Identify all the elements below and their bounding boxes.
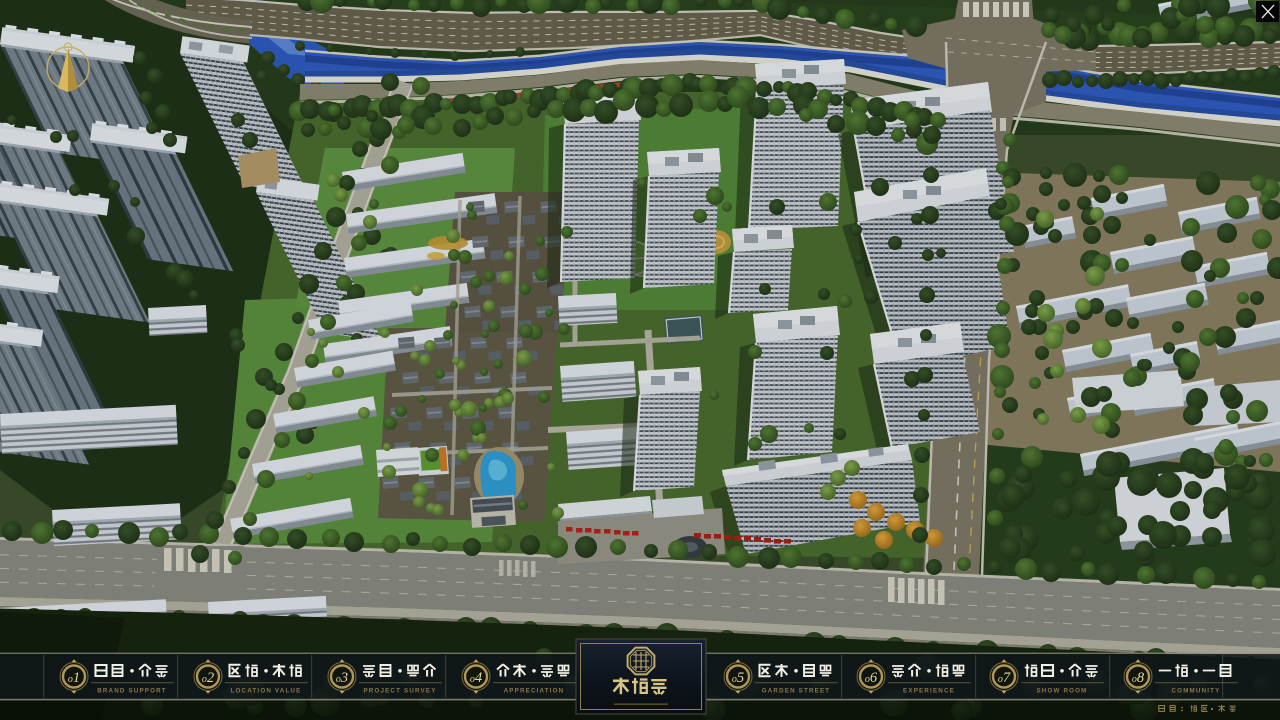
svg-text:GARDEN STREET: GARDEN STREET xyxy=(762,688,831,695)
svg-text:EXPERIENCE: EXPERIENCE xyxy=(903,688,955,695)
svg-text:BRAND SUPPORT: BRAND SUPPORT xyxy=(97,688,167,695)
svg-text:SHOW ROOM: SHOW ROOM xyxy=(1036,688,1087,695)
svg-text:PROJECT SURVEY: PROJECT SURVEY xyxy=(363,688,436,695)
svg-text:LOCATION VALUE: LOCATION VALUE xyxy=(231,688,302,695)
svg-text:APPRECIATION: APPRECIATION xyxy=(504,688,565,695)
svg-text:COMMUNITY: COMMUNITY xyxy=(1172,688,1221,695)
